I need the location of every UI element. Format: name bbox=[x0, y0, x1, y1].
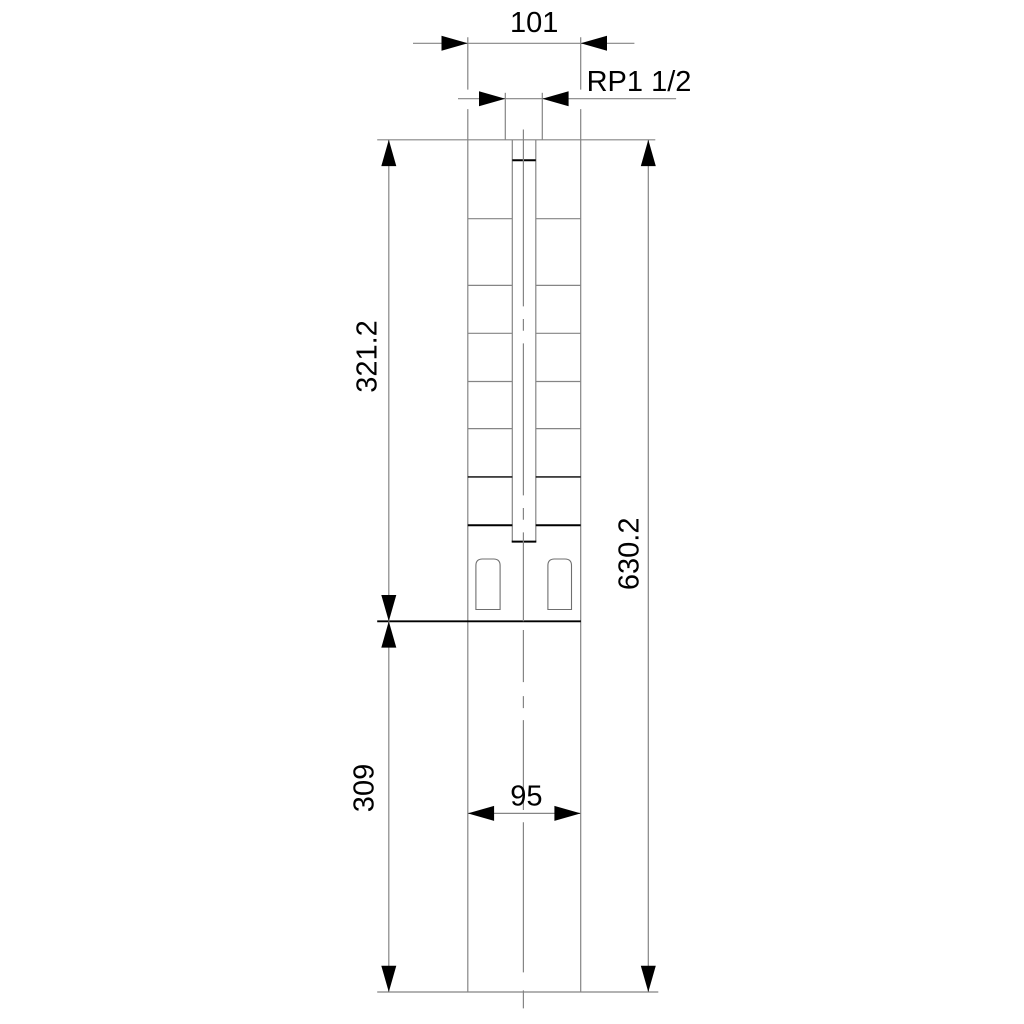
svg-text:101: 101 bbox=[510, 7, 558, 39]
svg-text:630.2: 630.2 bbox=[613, 518, 645, 591]
svg-text:321.2: 321.2 bbox=[351, 320, 383, 393]
svg-text:309: 309 bbox=[348, 764, 380, 812]
svg-text:95: 95 bbox=[510, 781, 542, 813]
svg-text:RP1 1/2: RP1 1/2 bbox=[587, 66, 692, 98]
